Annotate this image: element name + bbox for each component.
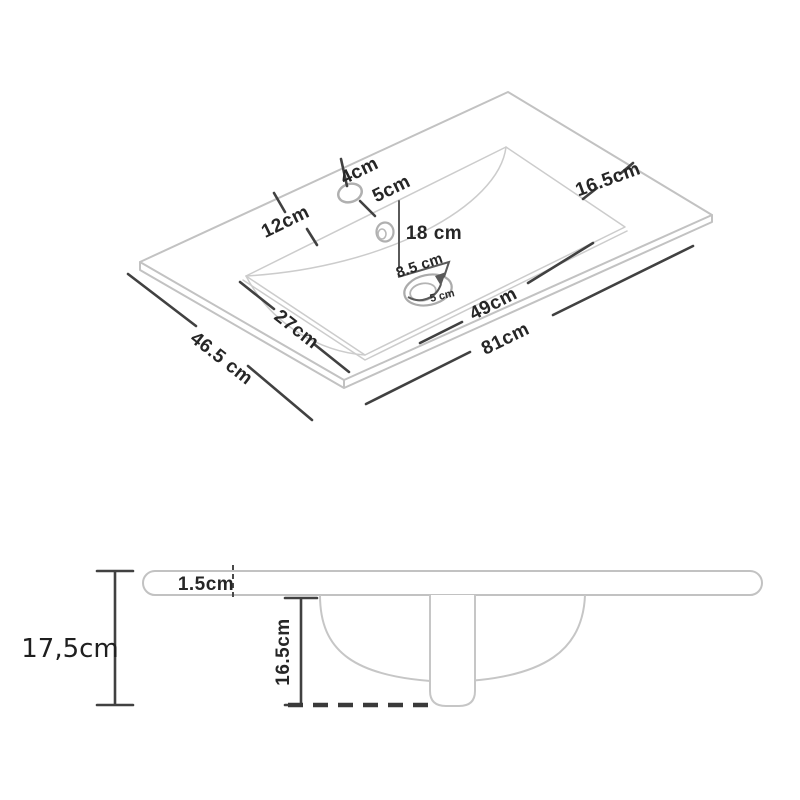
side-countertop-slab	[143, 571, 762, 595]
label-overall-depth: 46.5 cm	[186, 328, 257, 390]
side-drain-pipe	[430, 595, 475, 706]
washbasin-technical-drawing: 4cm 5cm 12cm 18 cm 16.5cm 8.5 cm 5 cm 27…	[0, 0, 800, 800]
label-countertop-thickness: 1.5cm	[178, 574, 234, 595]
label-overall-height: 17,5cm	[21, 634, 119, 664]
top-view-group: 4cm 5cm 12cm 18 cm 16.5cm 8.5 cm 5 cm 27…	[128, 92, 712, 420]
side-view-group: 17,5cm 1.5cm 16.5cm	[21, 565, 762, 706]
drawing-canvas: 4cm 5cm 12cm 18 cm 16.5cm 8.5 cm 5 cm 27…	[0, 0, 800, 800]
label-basin-depth: 16.5cm	[273, 618, 294, 685]
label-faucet-to-drain: 18 cm	[406, 223, 462, 244]
